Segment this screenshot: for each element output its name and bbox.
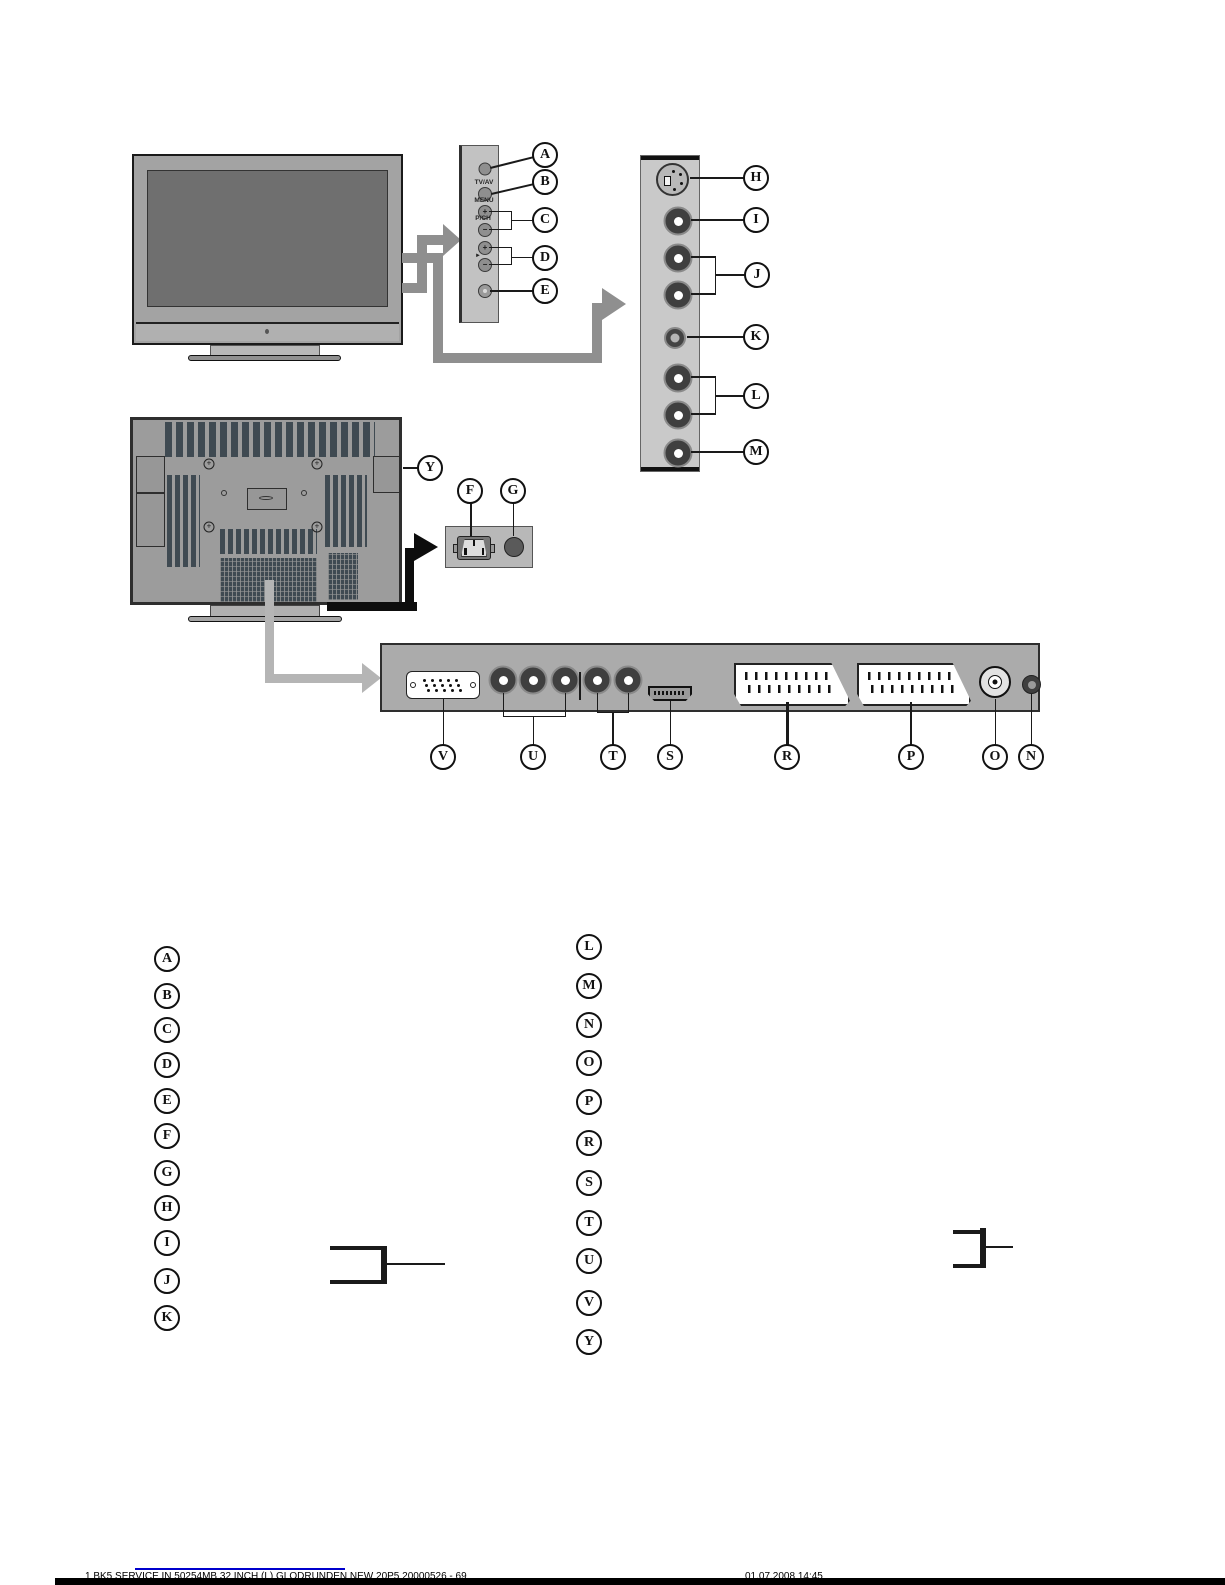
legend-item: S [576,1170,602,1196]
side-control-panel: TV/AV MENU + P/CH − + ► − [459,145,499,323]
callout-C: C [532,207,558,233]
headphone-jack [664,327,686,349]
rca-jack-u1 [489,666,518,695]
footer-date-text: 01.07.2008 14:45 [745,1571,823,1578]
rca-jack-t1 [583,666,612,695]
callout-I: I [743,207,769,233]
leader-f [470,502,472,536]
source-button [479,163,492,176]
mount-box-left-bottom [136,493,165,547]
tv-front-view [132,154,403,345]
legend-item: P [576,1089,602,1115]
vent-mesh-right [328,553,358,600]
callout-R: R [774,744,800,770]
audio-jack-n [1022,675,1041,694]
ac-power-inlet [457,536,491,560]
legend-item: R [576,1130,602,1156]
callout-U: U [520,744,546,770]
rca-jack-j1 [664,244,693,273]
leader-r [786,702,789,746]
leader-k [687,336,744,338]
legend-item: J [154,1268,180,1294]
tv-back-view: + + + + [130,417,402,605]
power-panel [445,526,533,568]
vent-right [325,475,367,547]
legend-item: V [576,1290,602,1316]
screw-icon: + [204,459,215,470]
leader-g [513,502,515,536]
leader-i [691,219,744,221]
screw-icon: + [312,522,323,533]
pch-label: P/CH [475,215,491,222]
vent-top [165,422,375,457]
leader-c [512,220,534,222]
legend-item: N [576,1012,602,1038]
callout-J: J [744,262,770,288]
power-switch [504,537,524,557]
legend-item: E [154,1088,180,1114]
callout-N: N [1018,744,1044,770]
leader-o [995,699,997,746]
scart-connector-r [734,663,850,706]
callout-E: E [532,278,558,304]
rca-jack-u3 [551,666,580,695]
menu-label: MENU [474,197,493,204]
leader-u [533,716,535,746]
legend-item: C [154,1017,180,1043]
legend-item: T [576,1210,602,1236]
leader-n [1031,694,1033,746]
tvav-label: TV/AV [475,179,494,186]
legend-item: L [576,934,602,960]
callout-M: M [743,439,769,465]
rca-jack-u2 [519,666,548,695]
legend-item: K [154,1305,180,1331]
scart-connector-p [857,663,971,706]
vent-left [167,475,200,567]
rca-jack-i [664,207,693,236]
screw-icon: + [312,459,323,470]
rca-jack-t2 [614,666,643,695]
legend-item: B [154,983,180,1009]
screw-icon [221,490,227,496]
callout-L: L [743,383,769,409]
callout-V: V [430,744,456,770]
legend-item: A [154,946,180,972]
leader-s [670,701,672,746]
leader-d [512,257,534,259]
vent-middle [220,529,317,554]
rca-jack-l2 [664,401,693,430]
tv-logo-icon [265,329,269,334]
side-av-panel [640,155,700,472]
vga-connector [406,671,480,699]
legend-item: G [154,1160,180,1186]
pch-minus-button: − [478,223,492,237]
callout-P: P [898,744,924,770]
leader-j [716,274,746,276]
callout-Y: Y [417,455,443,481]
leader-h [690,177,744,179]
svideo-jack [656,163,689,196]
legend-item: O [576,1050,602,1076]
callout-S: S [657,744,683,770]
callout-D: D [532,245,558,271]
mount-box-left-top [136,456,165,493]
tv-front-stand-base [188,355,341,361]
mount-box-right-top [373,456,402,493]
leader-l [716,395,744,397]
callout-B: B [532,169,558,195]
hdmi-connector [648,686,692,701]
rf-antenna-connector [979,666,1011,698]
legend-item: M [576,973,602,999]
pointer-icon: ► [475,253,481,259]
page: TV/AV MENU + P/CH − + ► − A B C D E [0,0,1225,1585]
legend-item: D [154,1052,180,1078]
legend-item: H [154,1195,180,1221]
leader-v [443,699,445,746]
legend-item: U [576,1248,602,1274]
callout-O: O [982,744,1008,770]
callout-K: K [743,324,769,350]
leader-m [691,451,744,453]
screw-icon [301,490,307,496]
rca-jack-j2 [664,281,693,310]
panel-divider [579,672,581,700]
callout-A: A [532,142,558,168]
callout-T: T [600,744,626,770]
callout-H: H [743,165,769,191]
rca-jack-m [664,439,693,468]
leader-t [612,712,614,746]
leader-p [910,702,913,746]
footer-text-row: 1 BK5 SERVICE IN 50254MB 32 INCH (L) GLO… [0,1571,1225,1578]
screw-icon: + [204,522,215,533]
volume-down-button: − [478,258,492,272]
footer-left-text: 1 BK5 SERVICE IN 50254MB 32 INCH (L) GLO… [85,1571,467,1578]
footer-rule [55,1578,1225,1585]
leader-e [490,290,534,292]
legend-item: Y [576,1329,602,1355]
callout-F: F [457,478,483,504]
tv-screen [147,170,388,307]
rca-jack-l1 [664,364,693,393]
footer-link-underline [135,1568,345,1570]
legend-item: I [154,1230,180,1256]
legend-item: F [154,1123,180,1149]
callout-G: G [500,478,526,504]
